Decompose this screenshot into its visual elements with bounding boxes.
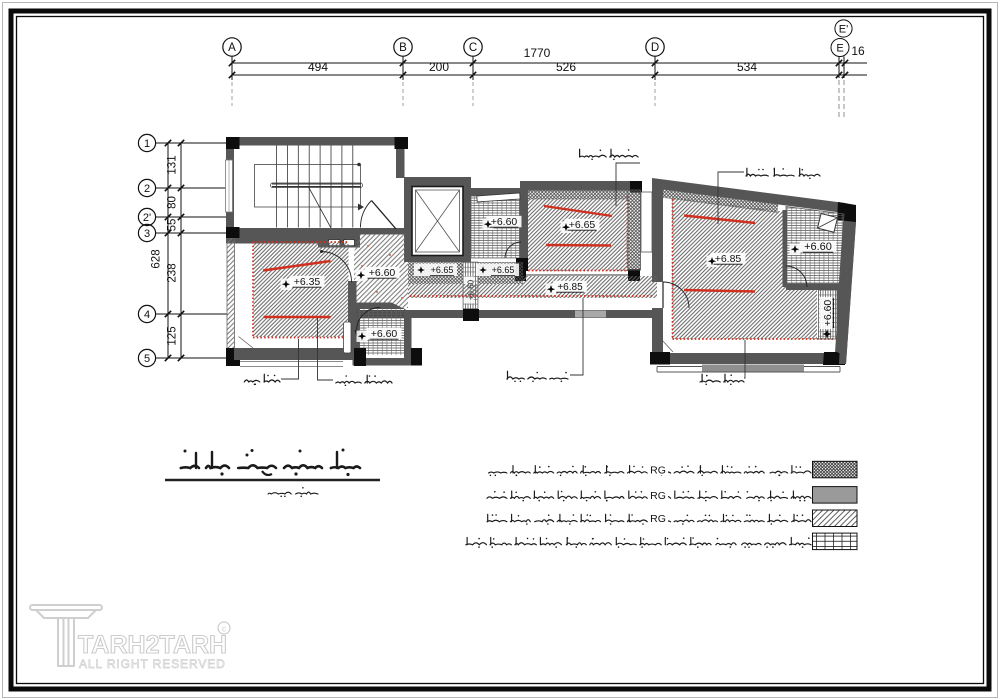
svg-text:2': 2' xyxy=(143,212,151,224)
svg-text:125: 125 xyxy=(167,326,179,345)
svg-text:2: 2 xyxy=(144,183,150,195)
svg-text:238: 238 xyxy=(167,263,179,282)
svg-text:131: 131 xyxy=(167,155,179,174)
svg-text:+6.60: +6.60 xyxy=(369,267,396,279)
svg-text:+6.85: +6.85 xyxy=(715,253,742,265)
svg-text:1770: 1770 xyxy=(524,46,551,60)
svg-text:+6.60: +6.60 xyxy=(822,300,834,327)
svg-text:RG: RG xyxy=(650,513,666,525)
svg-text:5: 5 xyxy=(144,353,150,365)
svg-text:526: 526 xyxy=(556,60,576,74)
svg-text:1: 1 xyxy=(144,138,150,150)
svg-text:D: D xyxy=(651,42,659,54)
svg-text:E: E xyxy=(836,43,843,55)
svg-text:+6.35: +6.35 xyxy=(294,276,321,288)
svg-text:494: 494 xyxy=(308,60,328,74)
svg-text:16: 16 xyxy=(851,44,865,58)
svg-text:+6.65: +6.65 xyxy=(492,265,515,275)
svg-text:c: c xyxy=(222,625,226,634)
svg-text:628: 628 xyxy=(151,249,163,268)
svg-text:ALL RIGHT RESERVED: ALL RIGHT RESERVED xyxy=(79,657,226,671)
svg-text:+6.65: +6.65 xyxy=(431,265,454,275)
svg-text:RG: RG xyxy=(650,465,666,477)
svg-text:+6.60: +6.60 xyxy=(804,241,832,253)
svg-text:TARH2TARH: TARH2TARH xyxy=(78,631,227,659)
svg-text:55: 55 xyxy=(167,219,179,232)
svg-text:C: C xyxy=(469,42,477,54)
svg-text:RG: RG xyxy=(650,490,666,502)
svg-text:B: B xyxy=(399,42,407,54)
svg-text:4: 4 xyxy=(144,309,150,321)
svg-text:+6.65: +6.65 xyxy=(569,219,596,231)
svg-text:80: 80 xyxy=(167,196,179,209)
svg-text:E': E' xyxy=(839,24,848,36)
svg-text:3: 3 xyxy=(144,228,150,240)
svg-text:534: 534 xyxy=(737,60,757,74)
svg-text:+6.60: +6.60 xyxy=(371,328,398,340)
svg-text:A: A xyxy=(228,42,236,54)
svg-text:200: 200 xyxy=(429,60,449,74)
svg-text:+6.85: +6.85 xyxy=(557,282,583,293)
svg-text:+6.60: +6.60 xyxy=(491,216,518,228)
